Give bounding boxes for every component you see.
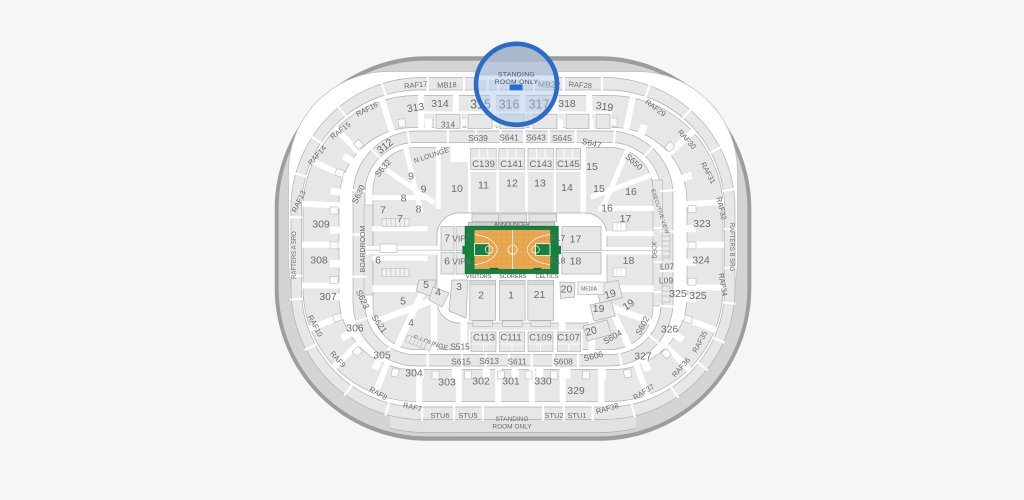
svg-text:16: 16: [601, 203, 613, 215]
svg-text:302: 302: [472, 376, 490, 388]
svg-text:VIP6: VIP6: [452, 256, 471, 266]
svg-text:4: 4: [408, 317, 414, 329]
svg-text:6: 6: [375, 255, 381, 267]
svg-text:S639: S639: [468, 133, 488, 143]
svg-text:325: 325: [669, 288, 687, 300]
svg-text:12: 12: [506, 178, 518, 190]
svg-text:16: 16: [625, 186, 637, 198]
svg-text:STU5: STU5: [458, 411, 477, 420]
svg-text:318: 318: [558, 98, 576, 110]
svg-text:S608: S608: [553, 357, 573, 367]
svg-text:314: 314: [431, 98, 449, 110]
svg-text:C109: C109: [529, 333, 552, 344]
svg-text:18: 18: [623, 255, 635, 267]
svg-text:323: 323: [693, 218, 711, 230]
svg-text:308: 308: [310, 255, 328, 267]
svg-text:S643: S643: [526, 133, 546, 143]
svg-text:C111: C111: [500, 333, 521, 344]
svg-text:L09: L09: [659, 276, 673, 286]
svg-text:ROOM ONLY: ROOM ONLY: [492, 424, 532, 431]
svg-text:4: 4: [435, 287, 441, 299]
svg-text:VISITORS: VISITORS: [466, 274, 492, 280]
svg-text:324: 324: [692, 255, 710, 267]
svg-text:9: 9: [421, 184, 427, 196]
svg-text:BOARDROOM: BOARDROOM: [360, 225, 367, 272]
svg-text:DECK: DECK: [653, 242, 659, 259]
svg-text:STANDING: STANDING: [495, 416, 528, 423]
svg-text:SCORERS: SCORERS: [499, 274, 527, 280]
svg-text:7: 7: [444, 233, 450, 245]
svg-text:329: 329: [567, 385, 585, 397]
svg-text:C141: C141: [500, 159, 523, 170]
svg-text:C139: C139: [472, 159, 495, 170]
svg-text:11: 11: [478, 180, 489, 192]
svg-text:304: 304: [405, 368, 423, 380]
svg-text:RAFTERS A SRO: RAFTERS A SRO: [292, 231, 298, 279]
svg-text:3: 3: [456, 281, 462, 293]
svg-text:20: 20: [561, 284, 573, 296]
svg-text:10: 10: [451, 183, 463, 195]
svg-text:7: 7: [380, 205, 386, 217]
svg-text:314: 314: [441, 119, 455, 129]
svg-text:313: 313: [406, 101, 425, 115]
svg-text:17: 17: [620, 213, 632, 225]
svg-text:306: 306: [346, 323, 364, 335]
svg-text:303: 303: [438, 377, 456, 389]
svg-text:F17: F17: [551, 233, 566, 243]
svg-text:C143: C143: [529, 159, 552, 170]
svg-text:RAF28: RAF28: [568, 80, 592, 91]
svg-text:S613: S613: [479, 356, 499, 366]
svg-text:VIP7: VIP7: [452, 233, 471, 243]
svg-text:325: 325: [689, 290, 707, 302]
svg-text:326: 326: [661, 324, 679, 336]
svg-text:S515: S515: [450, 342, 470, 352]
svg-text:1: 1: [508, 290, 514, 302]
svg-text:14: 14: [561, 182, 573, 194]
svg-text:8: 8: [401, 193, 407, 205]
svg-text:330: 330: [534, 376, 552, 388]
svg-text:S645: S645: [552, 133, 572, 143]
svg-text:STU1: STU1: [567, 411, 586, 420]
svg-text:S611: S611: [507, 357, 526, 367]
svg-text:13: 13: [534, 178, 546, 190]
svg-text:MEDIA: MEDIA: [581, 287, 598, 293]
svg-text:CELTICS: CELTICS: [535, 274, 558, 280]
svg-text:5: 5: [423, 279, 429, 291]
svg-text:9: 9: [408, 171, 414, 183]
svg-text:STU2: STU2: [544, 411, 563, 420]
svg-text:STU6: STU6: [430, 411, 449, 420]
svg-text:327: 327: [634, 351, 652, 363]
svg-text:F18: F18: [551, 256, 566, 266]
svg-text:6: 6: [444, 256, 450, 268]
svg-text:C113: C113: [473, 333, 495, 344]
svg-text:5: 5: [400, 296, 406, 308]
svg-text:C145: C145: [557, 159, 580, 170]
svg-text:2: 2: [478, 290, 484, 302]
svg-text:7: 7: [397, 213, 403, 225]
svg-text:19: 19: [593, 303, 605, 315]
svg-text:S641: S641: [499, 133, 519, 143]
svg-text:309: 309: [312, 219, 330, 231]
svg-text:319: 319: [595, 100, 614, 114]
svg-text:L07: L07: [660, 262, 674, 272]
svg-text:STANDING: STANDING: [498, 71, 535, 78]
svg-text:18: 18: [570, 256, 582, 268]
svg-text:307: 307: [319, 291, 337, 303]
svg-text:17: 17: [570, 234, 582, 246]
svg-text:301: 301: [502, 376, 520, 388]
svg-text:21: 21: [534, 289, 546, 301]
svg-text:ANNOUNCER: ANNOUNCER: [494, 222, 529, 228]
svg-text:8: 8: [416, 204, 422, 216]
svg-text:305: 305: [373, 350, 391, 362]
svg-text:C107: C107: [557, 333, 580, 344]
svg-text:MB18: MB18: [437, 80, 457, 90]
svg-text:RAFTERS B SRO: RAFTERS B SRO: [728, 223, 734, 272]
svg-text:15: 15: [593, 183, 605, 195]
svg-text:S615: S615: [451, 357, 471, 367]
svg-text:15: 15: [586, 161, 598, 173]
